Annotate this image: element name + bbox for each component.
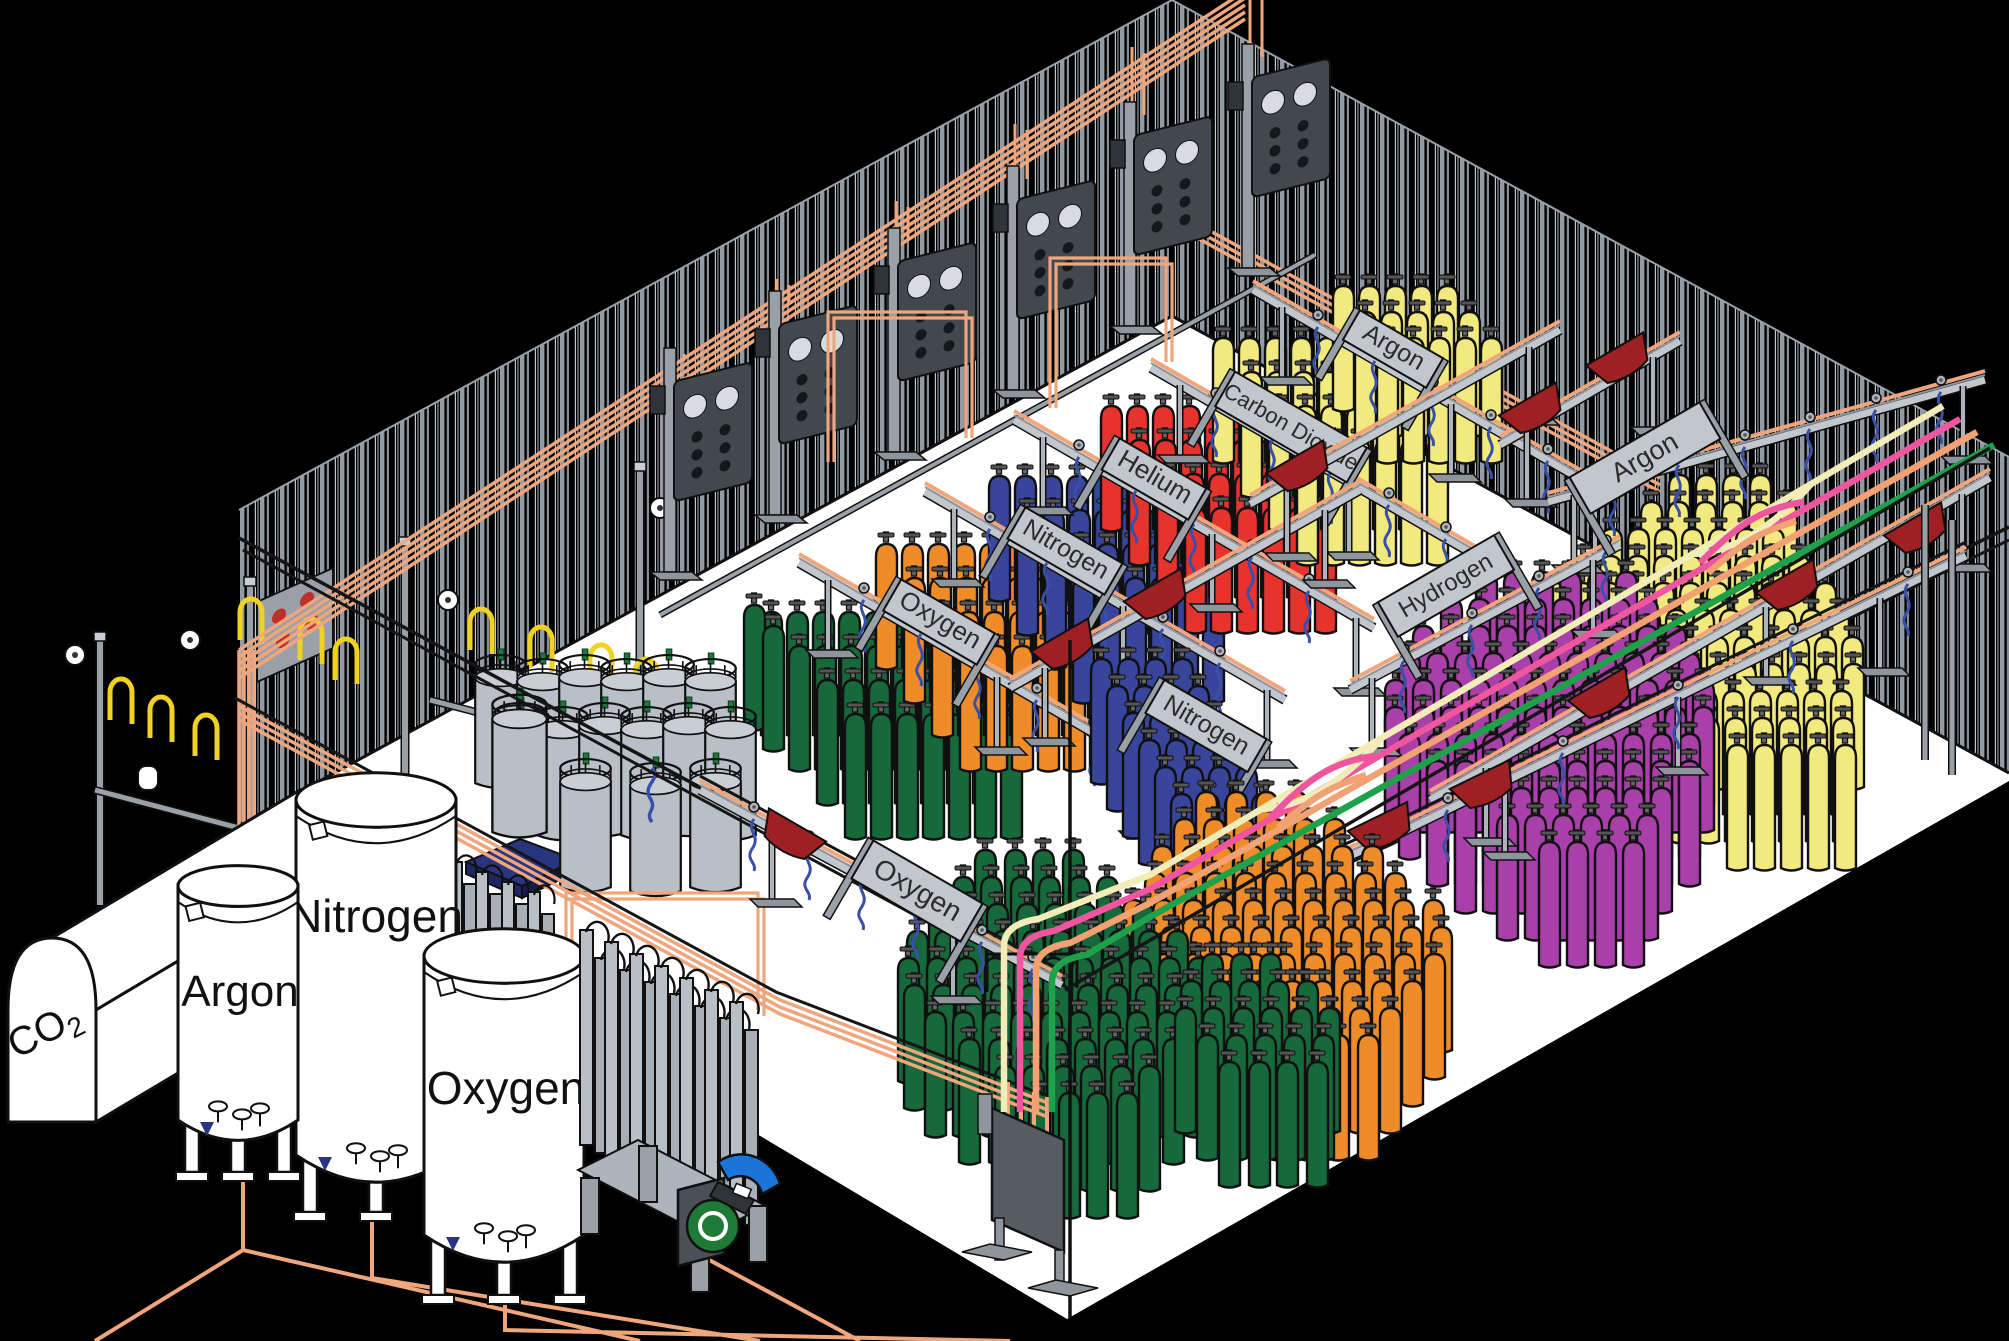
svg-text:Nitrogen: Nitrogen	[289, 890, 463, 942]
svg-text:Argon: Argon	[181, 967, 298, 1016]
svg-text:Oxygen: Oxygen	[427, 1062, 586, 1114]
